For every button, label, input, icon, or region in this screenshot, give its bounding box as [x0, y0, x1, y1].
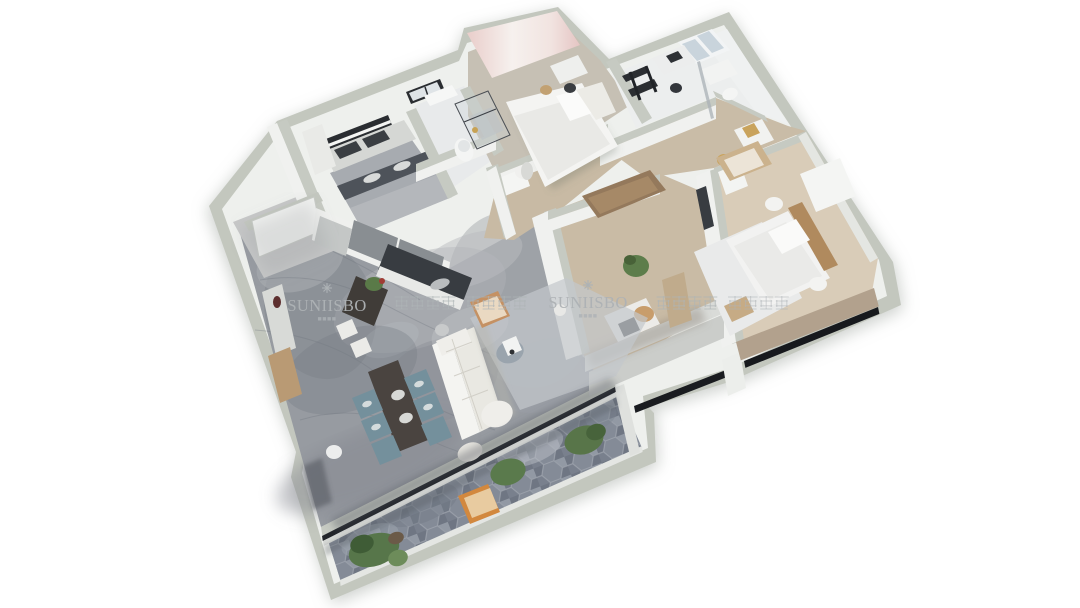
svg-text:SUNIISBO: SUNIISBO	[548, 293, 627, 312]
svg-text:■■■■: ■■■■	[318, 315, 337, 323]
svg-text:■■■■: ■■■■	[579, 312, 598, 320]
svg-text:SUNIISBO: SUNIISBO	[287, 296, 366, 315]
